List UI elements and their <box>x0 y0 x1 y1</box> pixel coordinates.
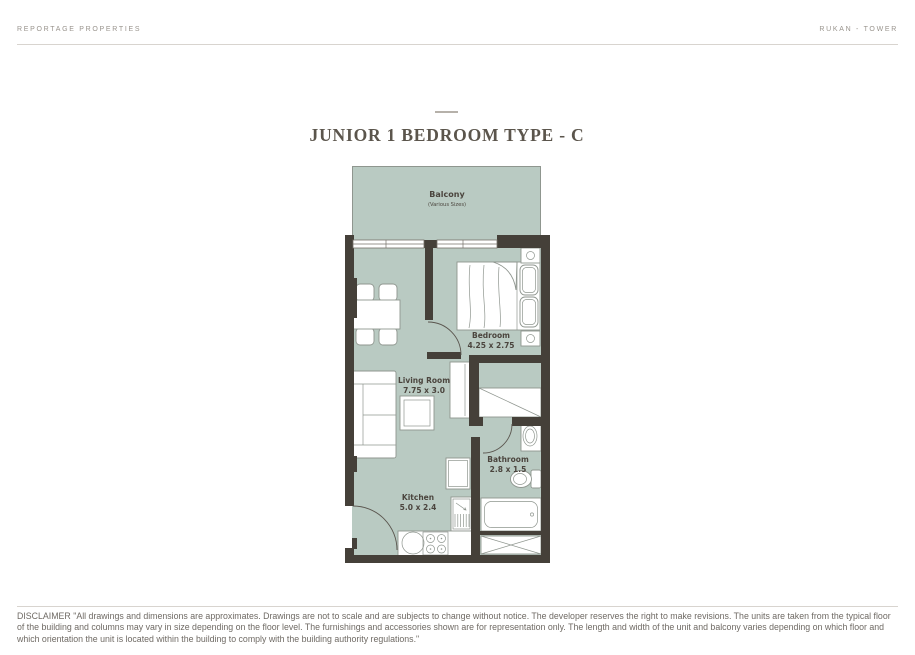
wardrobe <box>450 362 470 418</box>
balcony-note: (Various Sizes) <box>428 202 466 208</box>
closet-hanging-rail <box>479 388 541 417</box>
coffee-table <box>400 396 434 430</box>
kitchen-sink-unit <box>451 497 472 531</box>
bedroom-dimensions: 4.25 x 2.75 <box>467 341 514 350</box>
fridge <box>446 458 470 489</box>
kitchen-dimensions: 5.0 x 2.4 <box>400 503 437 512</box>
bedroom-label: Bedroom <box>472 331 510 340</box>
bedroom-door-leaf <box>427 352 461 359</box>
bedroom-window <box>437 240 497 248</box>
disclaimer-text: DISCLAIMER "All drawings and dimensions … <box>17 611 898 645</box>
living-room-dimensions: 7.75 x 3.0 <box>403 386 445 395</box>
living-room-label: Living Room <box>398 376 450 385</box>
brochure-page: REPORTAGE PROPERTIES RUKAN - TOWER JUNIO… <box>0 0 915 655</box>
utility-shaft <box>481 536 541 554</box>
bathroom-label: Bathroom <box>487 455 529 464</box>
nightstand-top <box>521 248 540 263</box>
kitchen-counter <box>398 531 472 556</box>
footer-divider <box>17 606 898 607</box>
sofa <box>352 371 396 458</box>
bed <box>457 262 540 330</box>
nightstand-bottom <box>521 331 540 346</box>
floor-plan: Balcony (Various Sizes) Bedroom 4.25 x 2… <box>0 0 915 655</box>
bathtub <box>481 498 541 531</box>
bathroom-sink <box>521 422 541 451</box>
kitchen-label: Kitchen <box>402 493 434 502</box>
bathroom-dimensions: 2.8 x 1.5 <box>490 465 527 474</box>
balcony-label: Balcony <box>429 190 465 199</box>
living-room-window <box>353 240 424 248</box>
